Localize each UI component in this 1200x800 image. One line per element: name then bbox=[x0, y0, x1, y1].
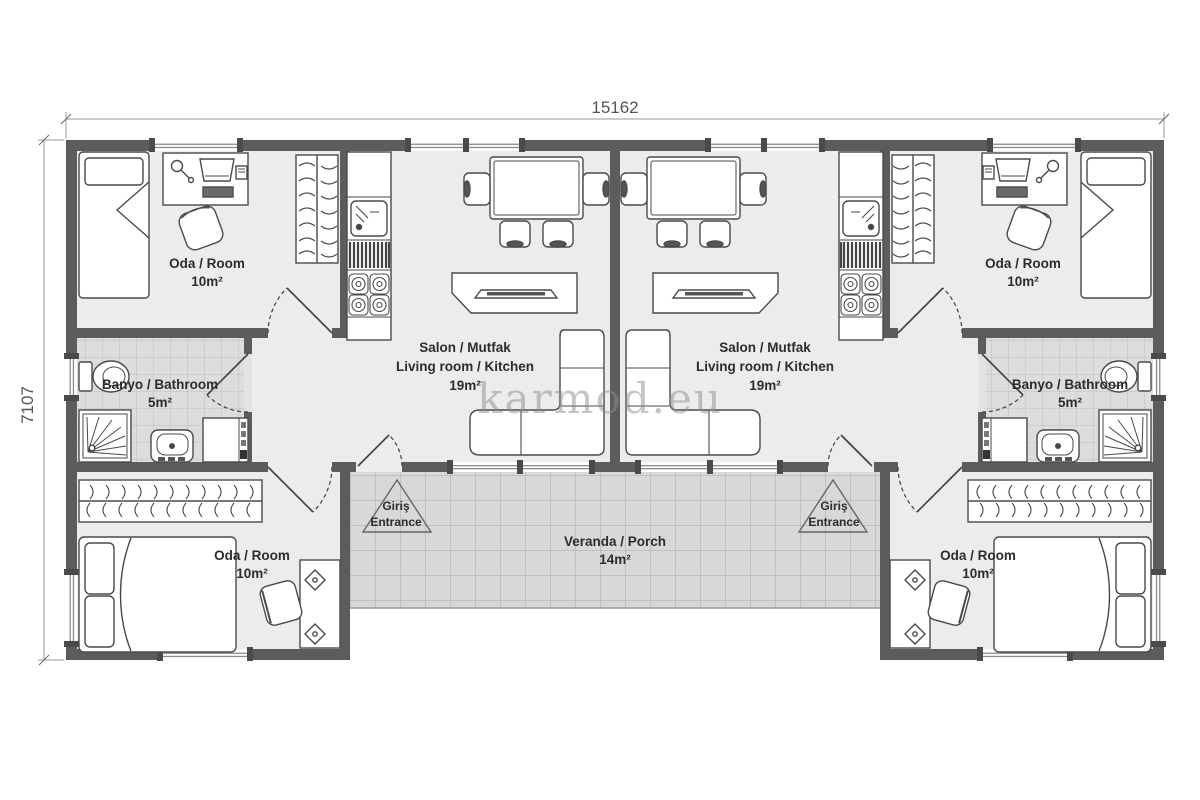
svg-text:19m²: 19m² bbox=[749, 378, 781, 393]
svg-text:Banyo / Bathroom: Banyo / Bathroom bbox=[102, 377, 218, 392]
svg-text:Entrance: Entrance bbox=[808, 515, 860, 529]
svg-text:Veranda / Porch: Veranda / Porch bbox=[564, 534, 666, 549]
svg-text:Living room / Kitchen: Living room / Kitchen bbox=[696, 359, 834, 374]
svg-text:10m²: 10m² bbox=[191, 274, 223, 289]
svg-text:14m²: 14m² bbox=[599, 552, 631, 567]
svg-text:5m²: 5m² bbox=[1058, 395, 1083, 410]
svg-text:Giriş: Giriş bbox=[820, 499, 848, 513]
floor-plan-svg: karmod.eu 15162 7107 Oda / Room 10m² Oda… bbox=[0, 0, 1200, 800]
svg-text:19m²: 19m² bbox=[449, 378, 481, 393]
svg-text:Salon / Mutfak: Salon / Mutfak bbox=[419, 340, 511, 355]
svg-text:Oda / Room: Oda / Room bbox=[214, 548, 290, 563]
svg-text:10m²: 10m² bbox=[962, 566, 994, 581]
svg-text:5m²: 5m² bbox=[148, 395, 173, 410]
svg-text:10m²: 10m² bbox=[236, 566, 268, 581]
svg-text:Oda / Room: Oda / Room bbox=[169, 256, 245, 271]
svg-text:Oda / Room: Oda / Room bbox=[940, 548, 1016, 563]
svg-text:Giriş: Giriş bbox=[382, 499, 410, 513]
svg-text:Living room / Kitchen: Living room / Kitchen bbox=[396, 359, 534, 374]
dimension-width-label: 15162 bbox=[591, 98, 638, 117]
svg-text:Banyo / Bathroom: Banyo / Bathroom bbox=[1012, 377, 1128, 392]
watermark-text: karmod.eu bbox=[477, 374, 723, 423]
svg-text:Oda / Room: Oda / Room bbox=[985, 256, 1061, 271]
svg-text:Salon / Mutfak: Salon / Mutfak bbox=[719, 340, 811, 355]
floor-plan-page: karmod.eu 15162 7107 Oda / Room 10m² Oda… bbox=[0, 0, 1200, 800]
dimension-height-label: 7107 bbox=[18, 386, 37, 424]
svg-text:Entrance: Entrance bbox=[370, 515, 422, 529]
svg-text:10m²: 10m² bbox=[1007, 274, 1039, 289]
